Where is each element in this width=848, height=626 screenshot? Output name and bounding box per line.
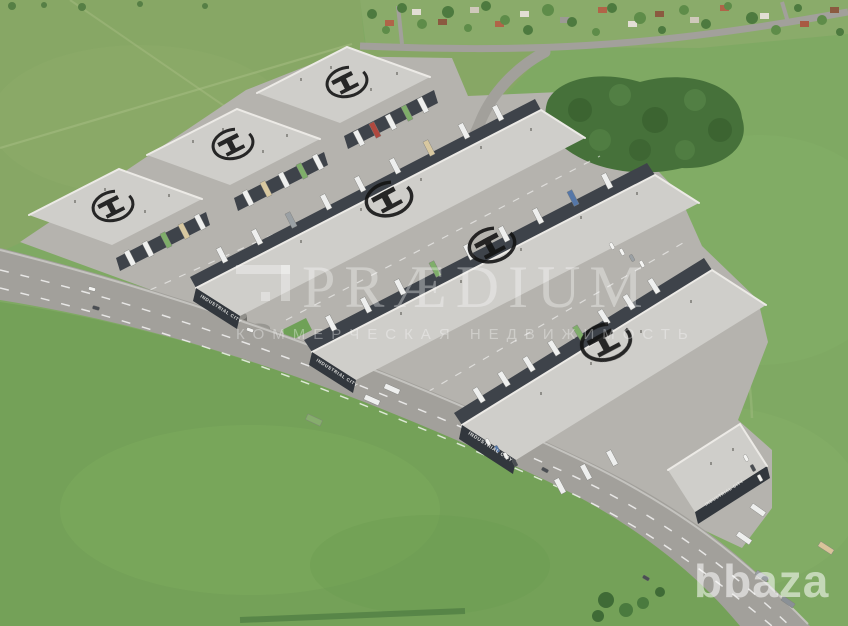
render-canvas: INDUSTRIAL CITY INDUSTRIAL CITY INDUSTRI… xyxy=(0,0,848,626)
aerial-render-industrial-park: INDUSTRIAL CITY INDUSTRIAL CITY INDUSTRI… xyxy=(0,0,848,626)
